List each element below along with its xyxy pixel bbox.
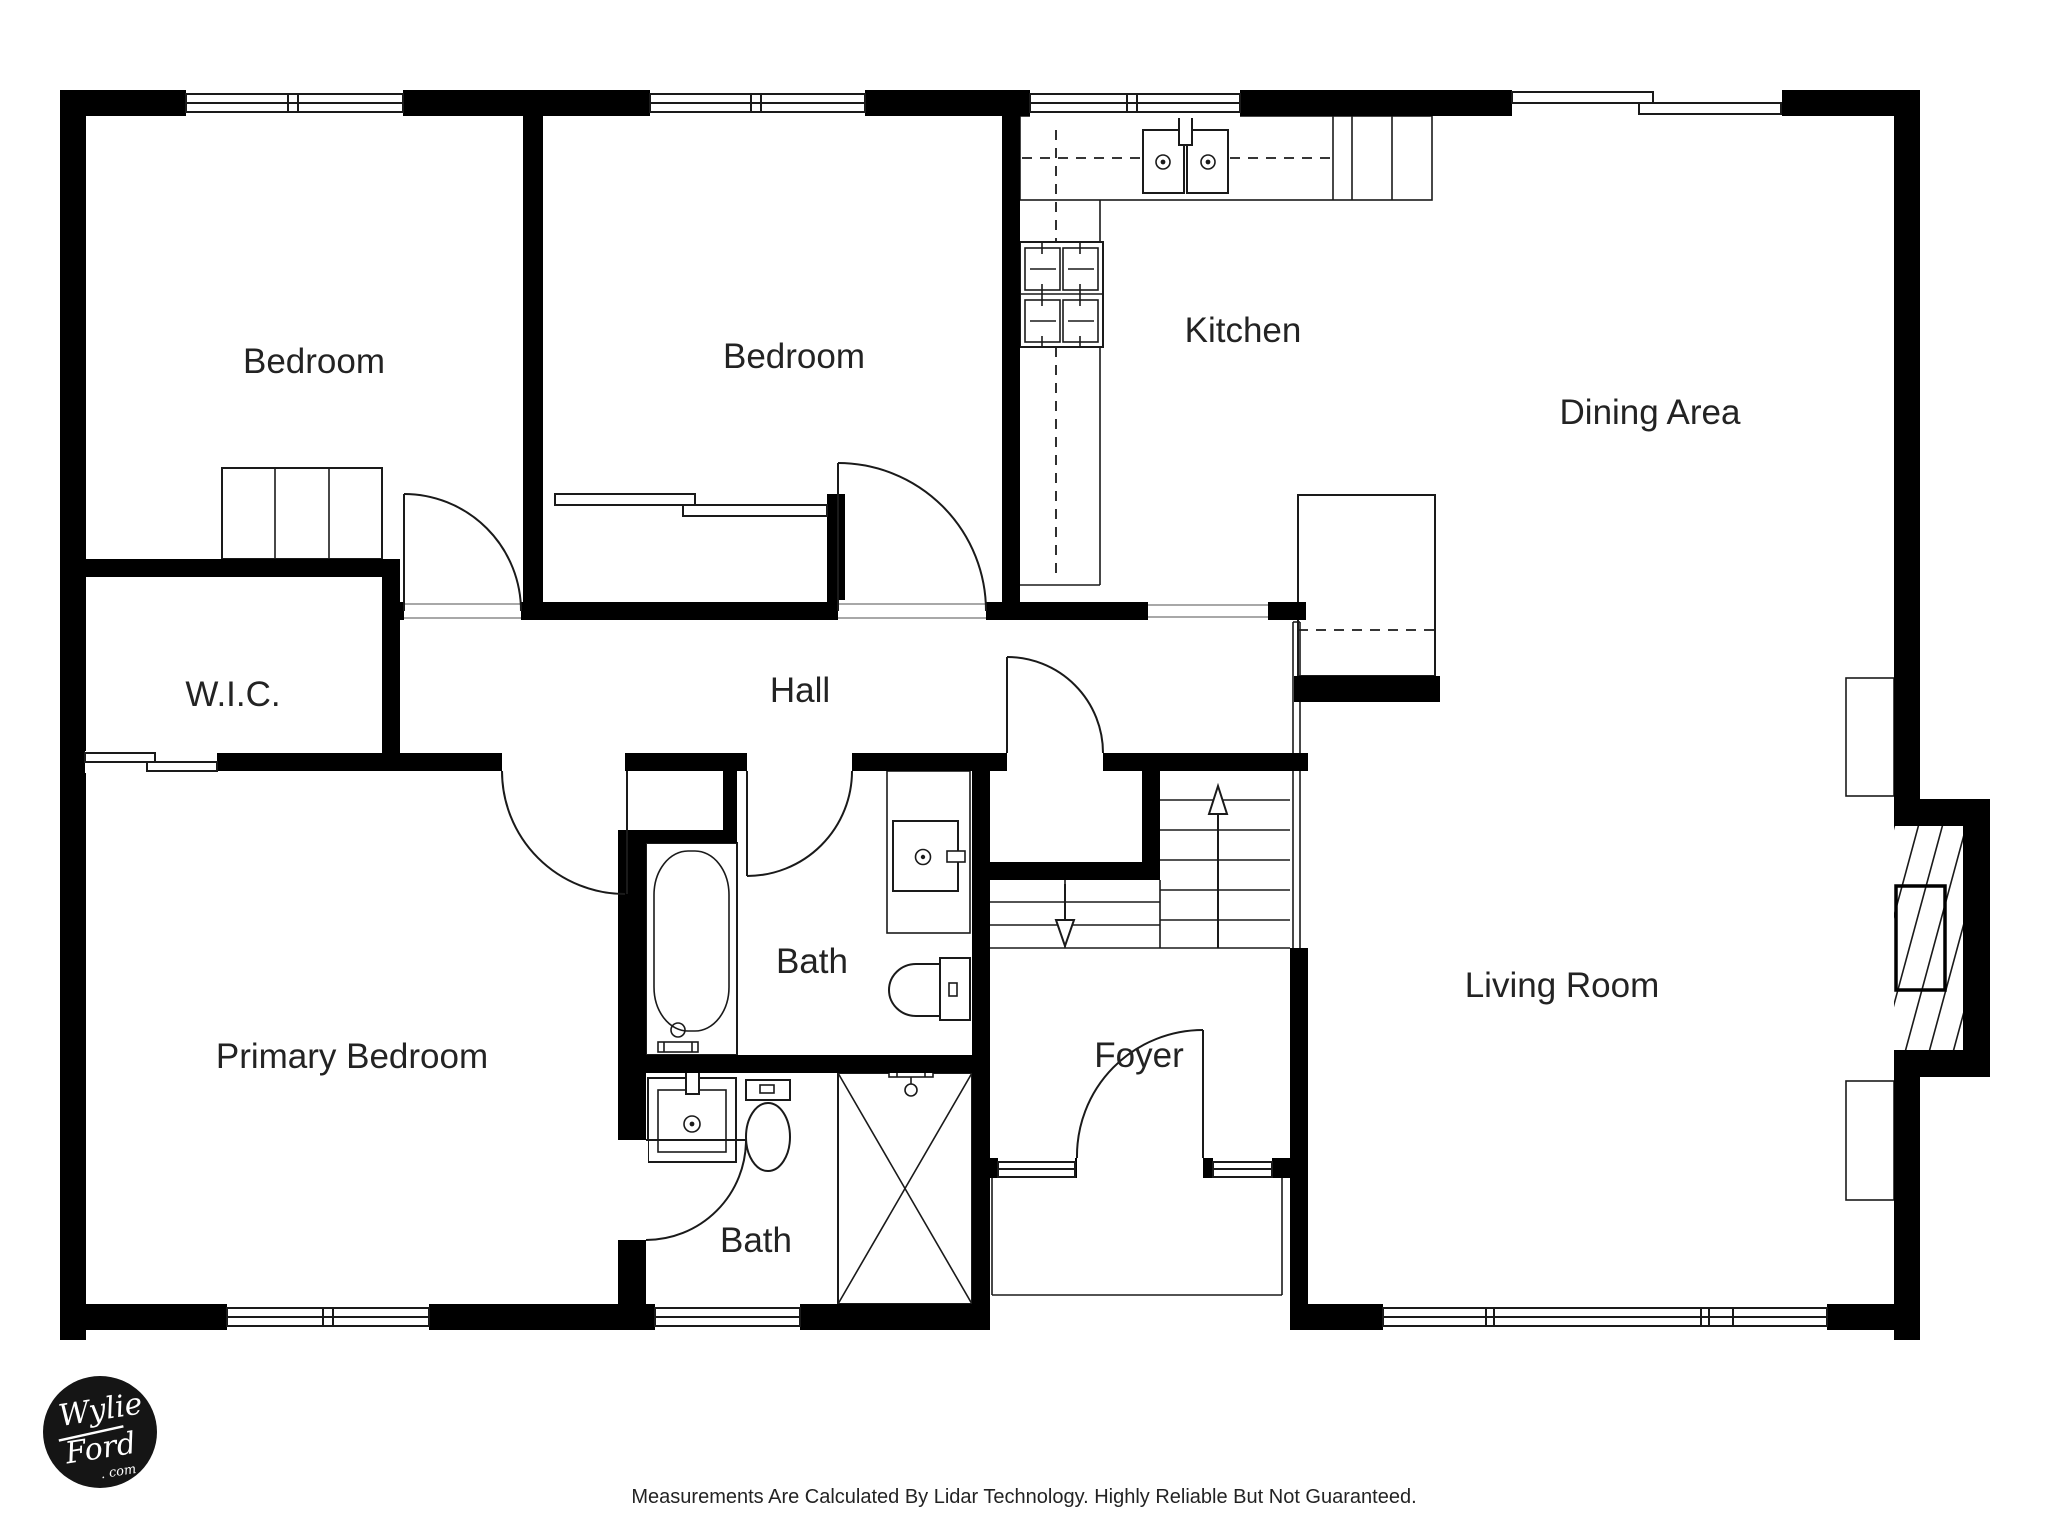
- bedroom-closet-sliding-door: [555, 494, 827, 516]
- window-dining-slider: [1512, 88, 1782, 118]
- wall-wic-right: [382, 559, 400, 771]
- window-foyer-right: [1213, 1156, 1272, 1180]
- opening-threshold: [1148, 605, 1268, 617]
- vanity-sink-icon: [887, 771, 970, 933]
- stove-icon: [1020, 242, 1103, 347]
- fireplace: [1832, 799, 2016, 1077]
- entry-stoop: [992, 1178, 1282, 1295]
- door-bedroom-middle: [838, 463, 986, 622]
- stairs-down-arrow-icon: [1056, 884, 1074, 946]
- door-bedroom-left: [404, 494, 521, 622]
- window-bedroom-left: [186, 88, 403, 118]
- label-hall-bath: Bath: [776, 942, 848, 981]
- window-foyer-left: [998, 1156, 1075, 1180]
- wylieford-logo: Wylie Ford . com: [43, 1376, 157, 1488]
- stairs-up-arrow-icon: [1209, 786, 1227, 948]
- footer-disclaimer: Measurements Are Calculated By Lidar Tec…: [631, 1486, 1416, 1508]
- kitchen-peninsula: [1298, 495, 1435, 676]
- label-bedroom-left: Bedroom: [243, 342, 385, 381]
- floor-plan-page: Bedroom Bedroom Kitchen Dining Area W.I.…: [0, 0, 2048, 1536]
- toilet-icon: [889, 958, 970, 1020]
- door-hall-bath: [747, 751, 852, 876]
- label-foyer: Foyer: [1094, 1036, 1184, 1075]
- label-kitchen: Kitchen: [1185, 311, 1302, 350]
- door-hall-closet: [1007, 657, 1103, 773]
- label-wic: W.I.C.: [185, 675, 280, 714]
- label-primary-bedroom: Primary Bedroom: [216, 1037, 488, 1076]
- label-dining-area: Dining Area: [1560, 393, 1741, 432]
- vanity-sink-icon: [648, 1068, 736, 1162]
- window-bedroom-middle: [650, 88, 865, 118]
- window-kitchen: [1030, 88, 1240, 118]
- toilet-icon: [746, 1080, 790, 1171]
- window-living-room: [1383, 1302, 1827, 1332]
- bathtub-icon: [646, 843, 737, 1055]
- label-bedroom-middle: Bedroom: [723, 337, 865, 376]
- wardrobe-closet: [222, 468, 382, 559]
- wic-sliding-door: [85, 751, 217, 773]
- wall-bedrooms-divider: [523, 116, 543, 620]
- door-primary-bedroom: [502, 751, 627, 894]
- primary-bath-fixtures: [648, 1066, 972, 1304]
- window-primary-bedroom: [227, 1302, 429, 1332]
- window-primary-bath: [655, 1302, 800, 1332]
- builtin-shelf-lower: [1846, 1081, 1894, 1200]
- label-primary-bath: Bath: [720, 1221, 792, 1260]
- hall-bath-fixtures: [646, 771, 970, 1055]
- shower-icon: [838, 1066, 972, 1304]
- floor-plan-canvas: Bedroom Bedroom Kitchen Dining Area W.I.…: [0, 0, 2048, 1536]
- wall-bedroom-kitchen: [1002, 116, 1020, 620]
- wall-wic-top: [86, 559, 400, 577]
- kitchen-fixtures: [1020, 112, 1435, 676]
- label-living-room: Living Room: [1465, 966, 1660, 1005]
- kitchen-sink: [1143, 112, 1228, 193]
- builtin-shelf-upper: [1846, 678, 1894, 796]
- label-hall: Hall: [770, 671, 830, 710]
